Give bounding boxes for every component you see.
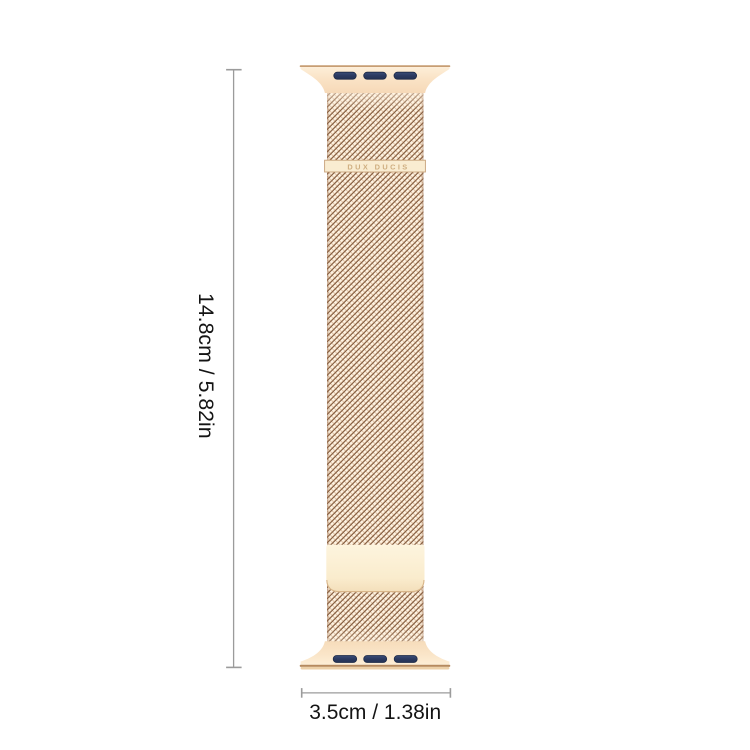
svg-text:3.5cm / 1.38in: 3.5cm / 1.38in (309, 701, 441, 724)
svg-text:DUX DUCIS: DUX DUCIS (347, 162, 409, 171)
svg-text:14.8cm / 5.82in: 14.8cm / 5.82in (194, 293, 218, 439)
